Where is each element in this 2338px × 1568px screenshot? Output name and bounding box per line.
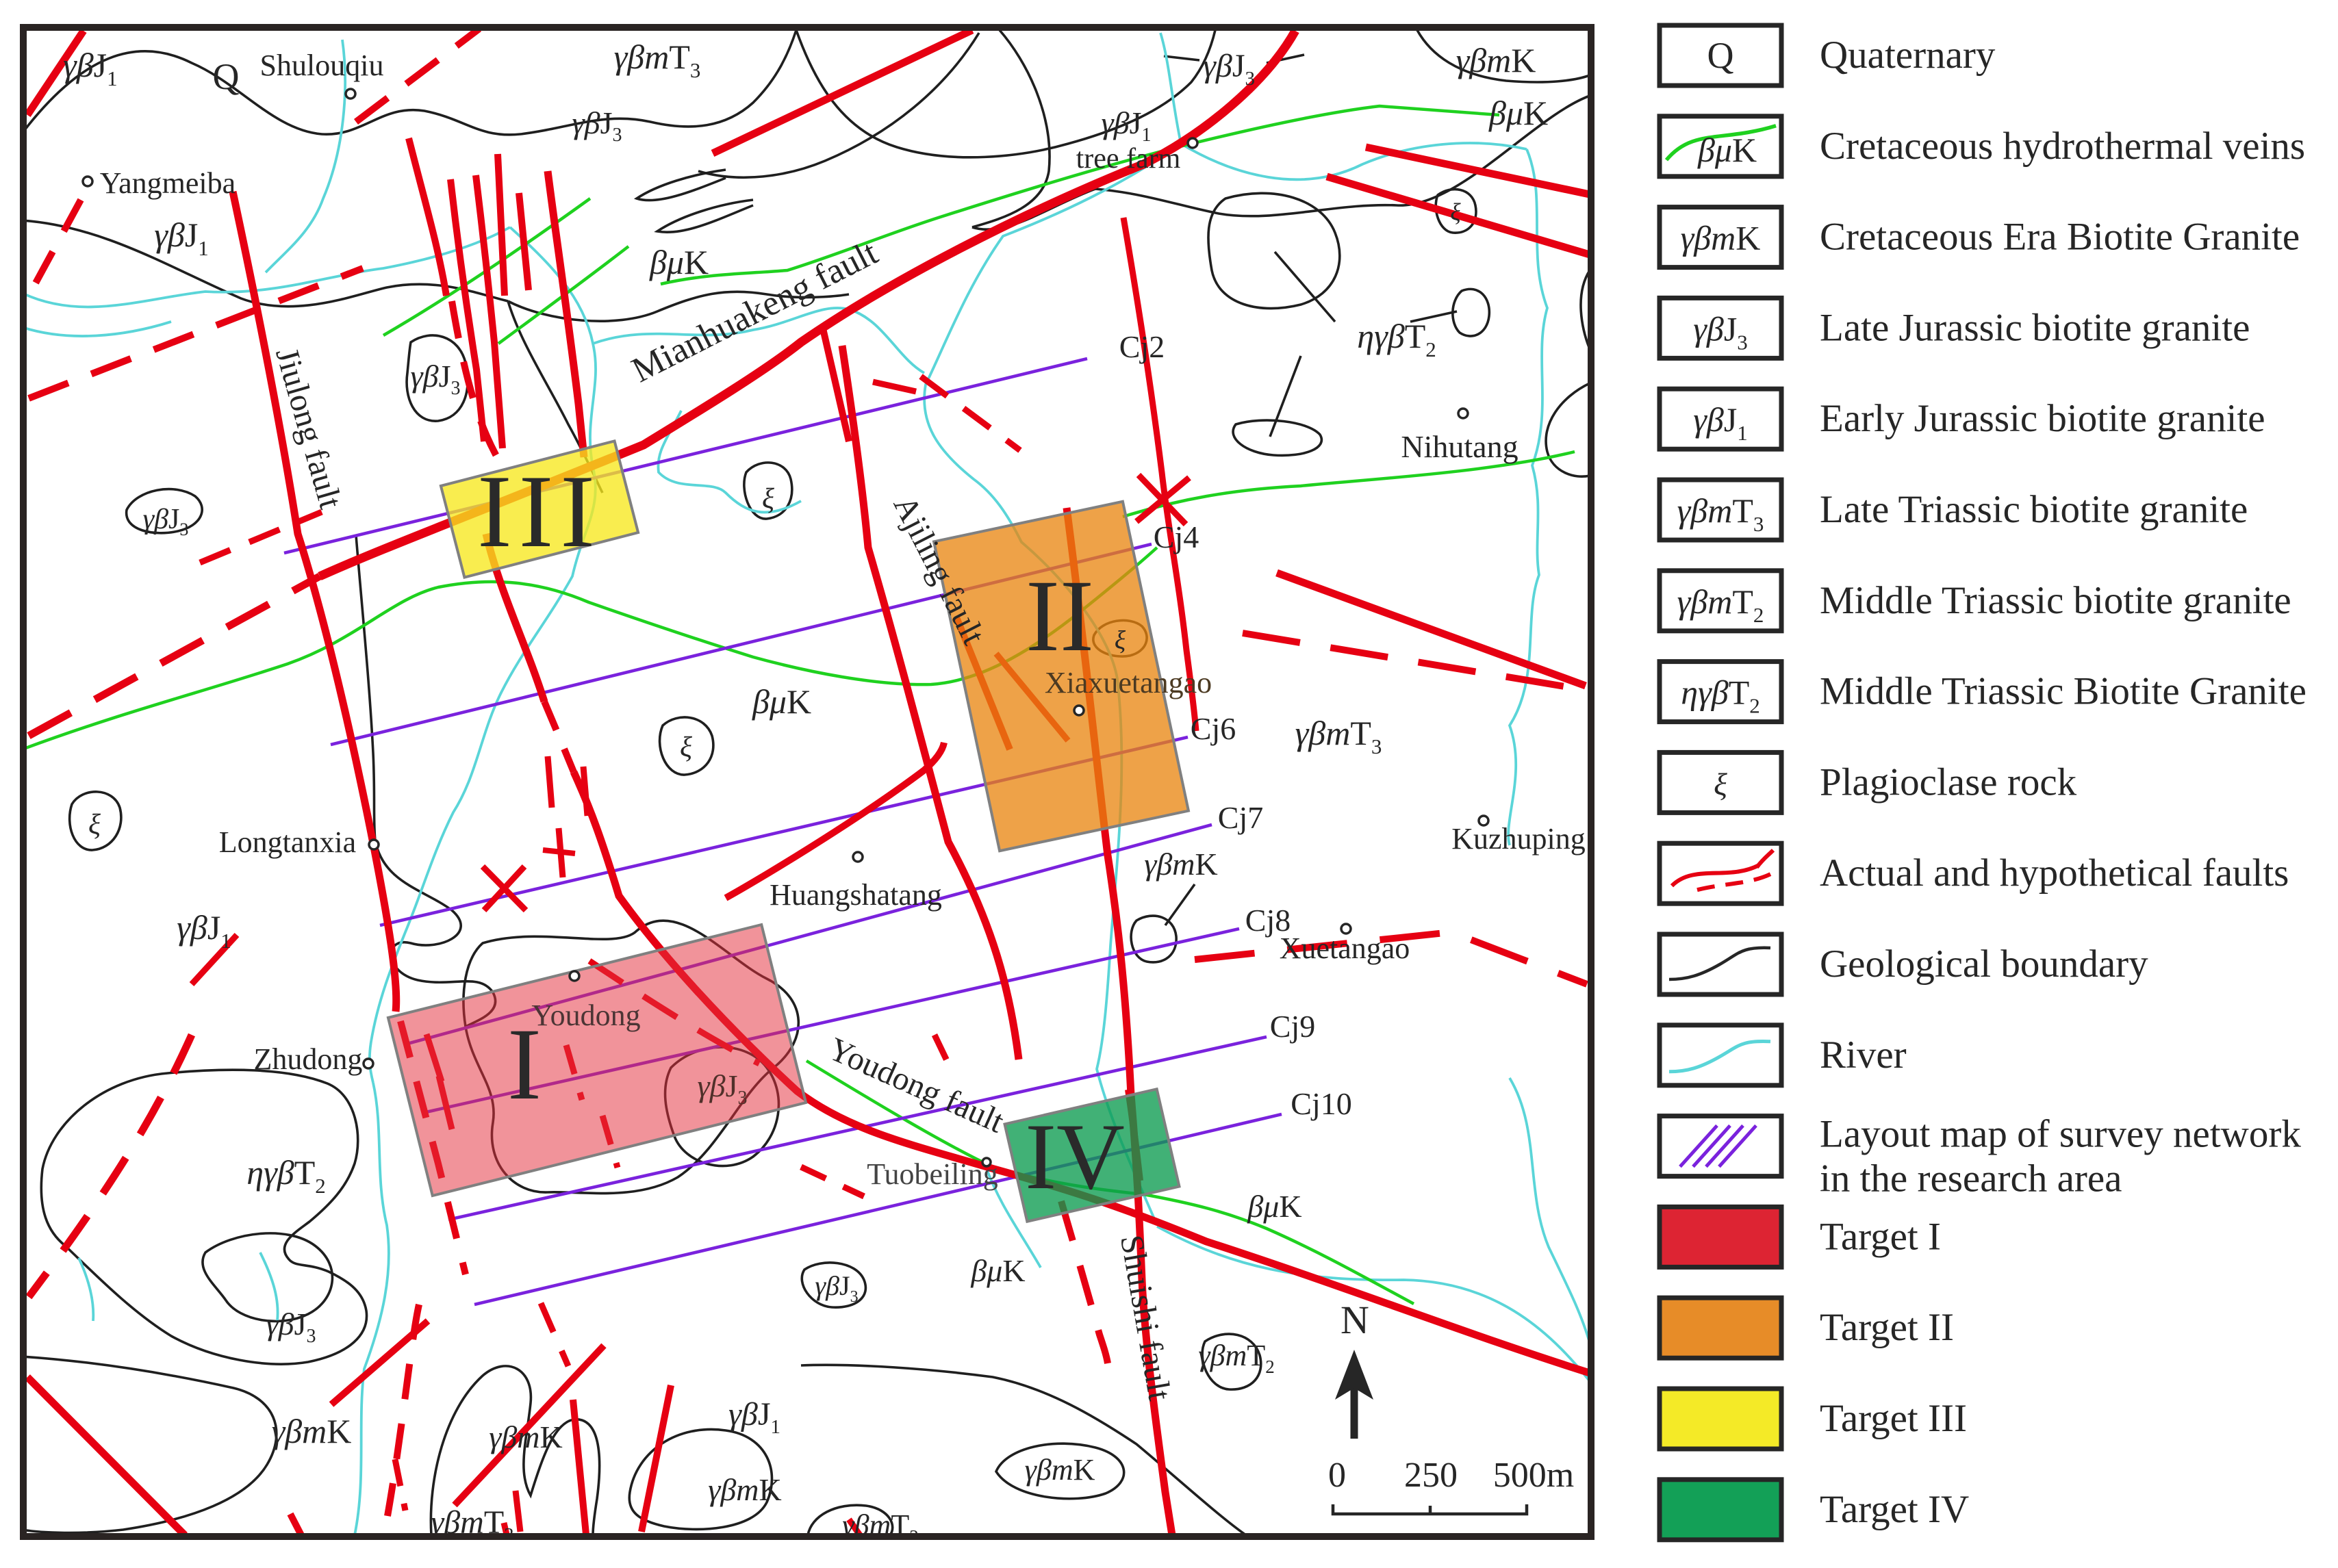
svg-text:γβmT2: γβmT2 [1198, 1339, 1274, 1377]
svg-text:γβmT3: γβmT3 [1295, 714, 1382, 758]
svg-text:Xiaxuetangao: Xiaxuetangao [1045, 666, 1212, 699]
svg-text:γβmK: γβmK [1025, 1453, 1095, 1487]
svg-text:500m: 500m [1493, 1456, 1574, 1495]
svg-text:γβmT3: γβmT3 [1677, 491, 1764, 536]
svg-text:βμK: βμK [1697, 131, 1757, 169]
svg-text:γβmT2: γβmT2 [1677, 582, 1764, 627]
svg-text:βμK: βμK [649, 243, 709, 281]
svg-text:250: 250 [1404, 1456, 1458, 1495]
svg-text:Late Jurassic biotite granite: Late Jurassic biotite granite [1820, 306, 2250, 349]
svg-text:βμK: βμK [752, 682, 811, 721]
svg-text:0: 0 [1328, 1456, 1346, 1495]
svg-text:III: III [477, 454, 602, 569]
svg-text:Nihutang: Nihutang [1401, 429, 1518, 464]
svg-text:Huangshatang: Huangshatang [770, 878, 942, 912]
svg-text:Cj2: Cj2 [1119, 329, 1165, 364]
svg-text:Target II: Target II [1820, 1306, 1954, 1349]
svg-text:Target I: Target I [1820, 1215, 1941, 1258]
svg-text:ηγβT2: ηγβT2 [246, 1153, 325, 1198]
svg-text:Cj10: Cj10 [1291, 1086, 1351, 1121]
svg-text:in the research area: in the research area [1820, 1157, 2122, 1200]
svg-text:Zhudong: Zhudong [254, 1042, 363, 1076]
svg-text:Target III: Target III [1820, 1397, 1967, 1440]
svg-text:Kuzhuping: Kuzhuping [1451, 822, 1586, 856]
svg-text:γβmK: γβmK [708, 1472, 782, 1507]
svg-text:βμK: βμK [1488, 94, 1548, 132]
svg-text:Cj6: Cj6 [1191, 711, 1236, 746]
svg-text:Target IV: Target IV [1820, 1488, 1969, 1531]
svg-text:ξ: ξ [88, 809, 101, 840]
svg-text:ξ: ξ [1714, 767, 1727, 801]
svg-text:ηγβT2: ηγβT2 [1357, 317, 1436, 361]
svg-text:Plagioclase rock: Plagioclase rock [1820, 760, 2077, 804]
svg-text:ξ: ξ [680, 732, 692, 763]
svg-text:γβmK: γβmK [1681, 219, 1761, 257]
svg-text:Cj4: Cj4 [1154, 519, 1199, 554]
svg-text:ηγβT2: ηγβT2 [1681, 673, 1759, 718]
svg-text:Q: Q [213, 56, 240, 97]
svg-text:River: River [1820, 1033, 1907, 1077]
svg-text:II: II [1026, 559, 1094, 673]
svg-text:Actual and hypothetical faults: Actual and hypothetical faults [1820, 851, 2289, 895]
svg-text:γβmT3: γβmT3 [614, 38, 701, 82]
svg-text:Middle Triassic biotite granit: Middle Triassic biotite granite [1820, 579, 2291, 622]
svg-text:Quaternary: Quaternary [1820, 34, 1996, 77]
svg-text:Middle Triassic Biotite Granit: Middle Triassic Biotite Granite [1820, 670, 2307, 713]
svg-text:Cj9: Cj9 [1270, 1009, 1315, 1044]
svg-text:βμK: βμK [970, 1253, 1025, 1288]
svg-text:Late Triassic biotite granite: Late Triassic biotite granite [1820, 488, 2248, 531]
svg-text:Q: Q [1707, 35, 1734, 76]
svg-text:Early Jurassic biotite granite: Early Jurassic biotite granite [1820, 397, 2265, 440]
svg-text:Layout map of survey network: Layout map of survey network [1820, 1113, 2301, 1156]
svg-text:Xuetangao: Xuetangao [1280, 931, 1410, 965]
svg-text:Longtanxia: Longtanxia [219, 825, 356, 859]
svg-text:Shulouqiu: Shulouqiu [260, 49, 384, 82]
svg-text:Yangmeiba: Yangmeiba [100, 166, 236, 200]
svg-text:ξ: ξ [1450, 198, 1461, 226]
svg-text:Cj8: Cj8 [1245, 903, 1291, 938]
svg-text:ξ: ξ [762, 483, 774, 515]
svg-text:βμK: βμK [1247, 1189, 1301, 1224]
svg-text:γβmK: γβmK [272, 1412, 352, 1450]
svg-text:Cretaceous hydrothermal veins: Cretaceous hydrothermal veins [1820, 125, 2305, 168]
svg-text:Cretaceous Era Biotite Granite: Cretaceous Era Biotite Granite [1820, 216, 2300, 259]
svg-text:Youdong: Youdong [531, 999, 640, 1032]
svg-text:tree farm: tree farm [1076, 143, 1181, 175]
svg-text:N: N [1340, 1298, 1369, 1342]
svg-text:Tuobeiling: Tuobeiling [867, 1157, 998, 1191]
svg-text:Geological boundary: Geological boundary [1820, 942, 2148, 986]
svg-text:γβmK: γβmK [489, 1419, 563, 1454]
svg-text:γβmK: γβmK [1456, 41, 1536, 79]
svg-text:Cj7: Cj7 [1218, 800, 1263, 835]
svg-text:ξ: ξ [1115, 626, 1126, 655]
svg-text:γβmK: γβmK [1144, 847, 1218, 882]
svg-text:IV: IV [1025, 1104, 1125, 1209]
